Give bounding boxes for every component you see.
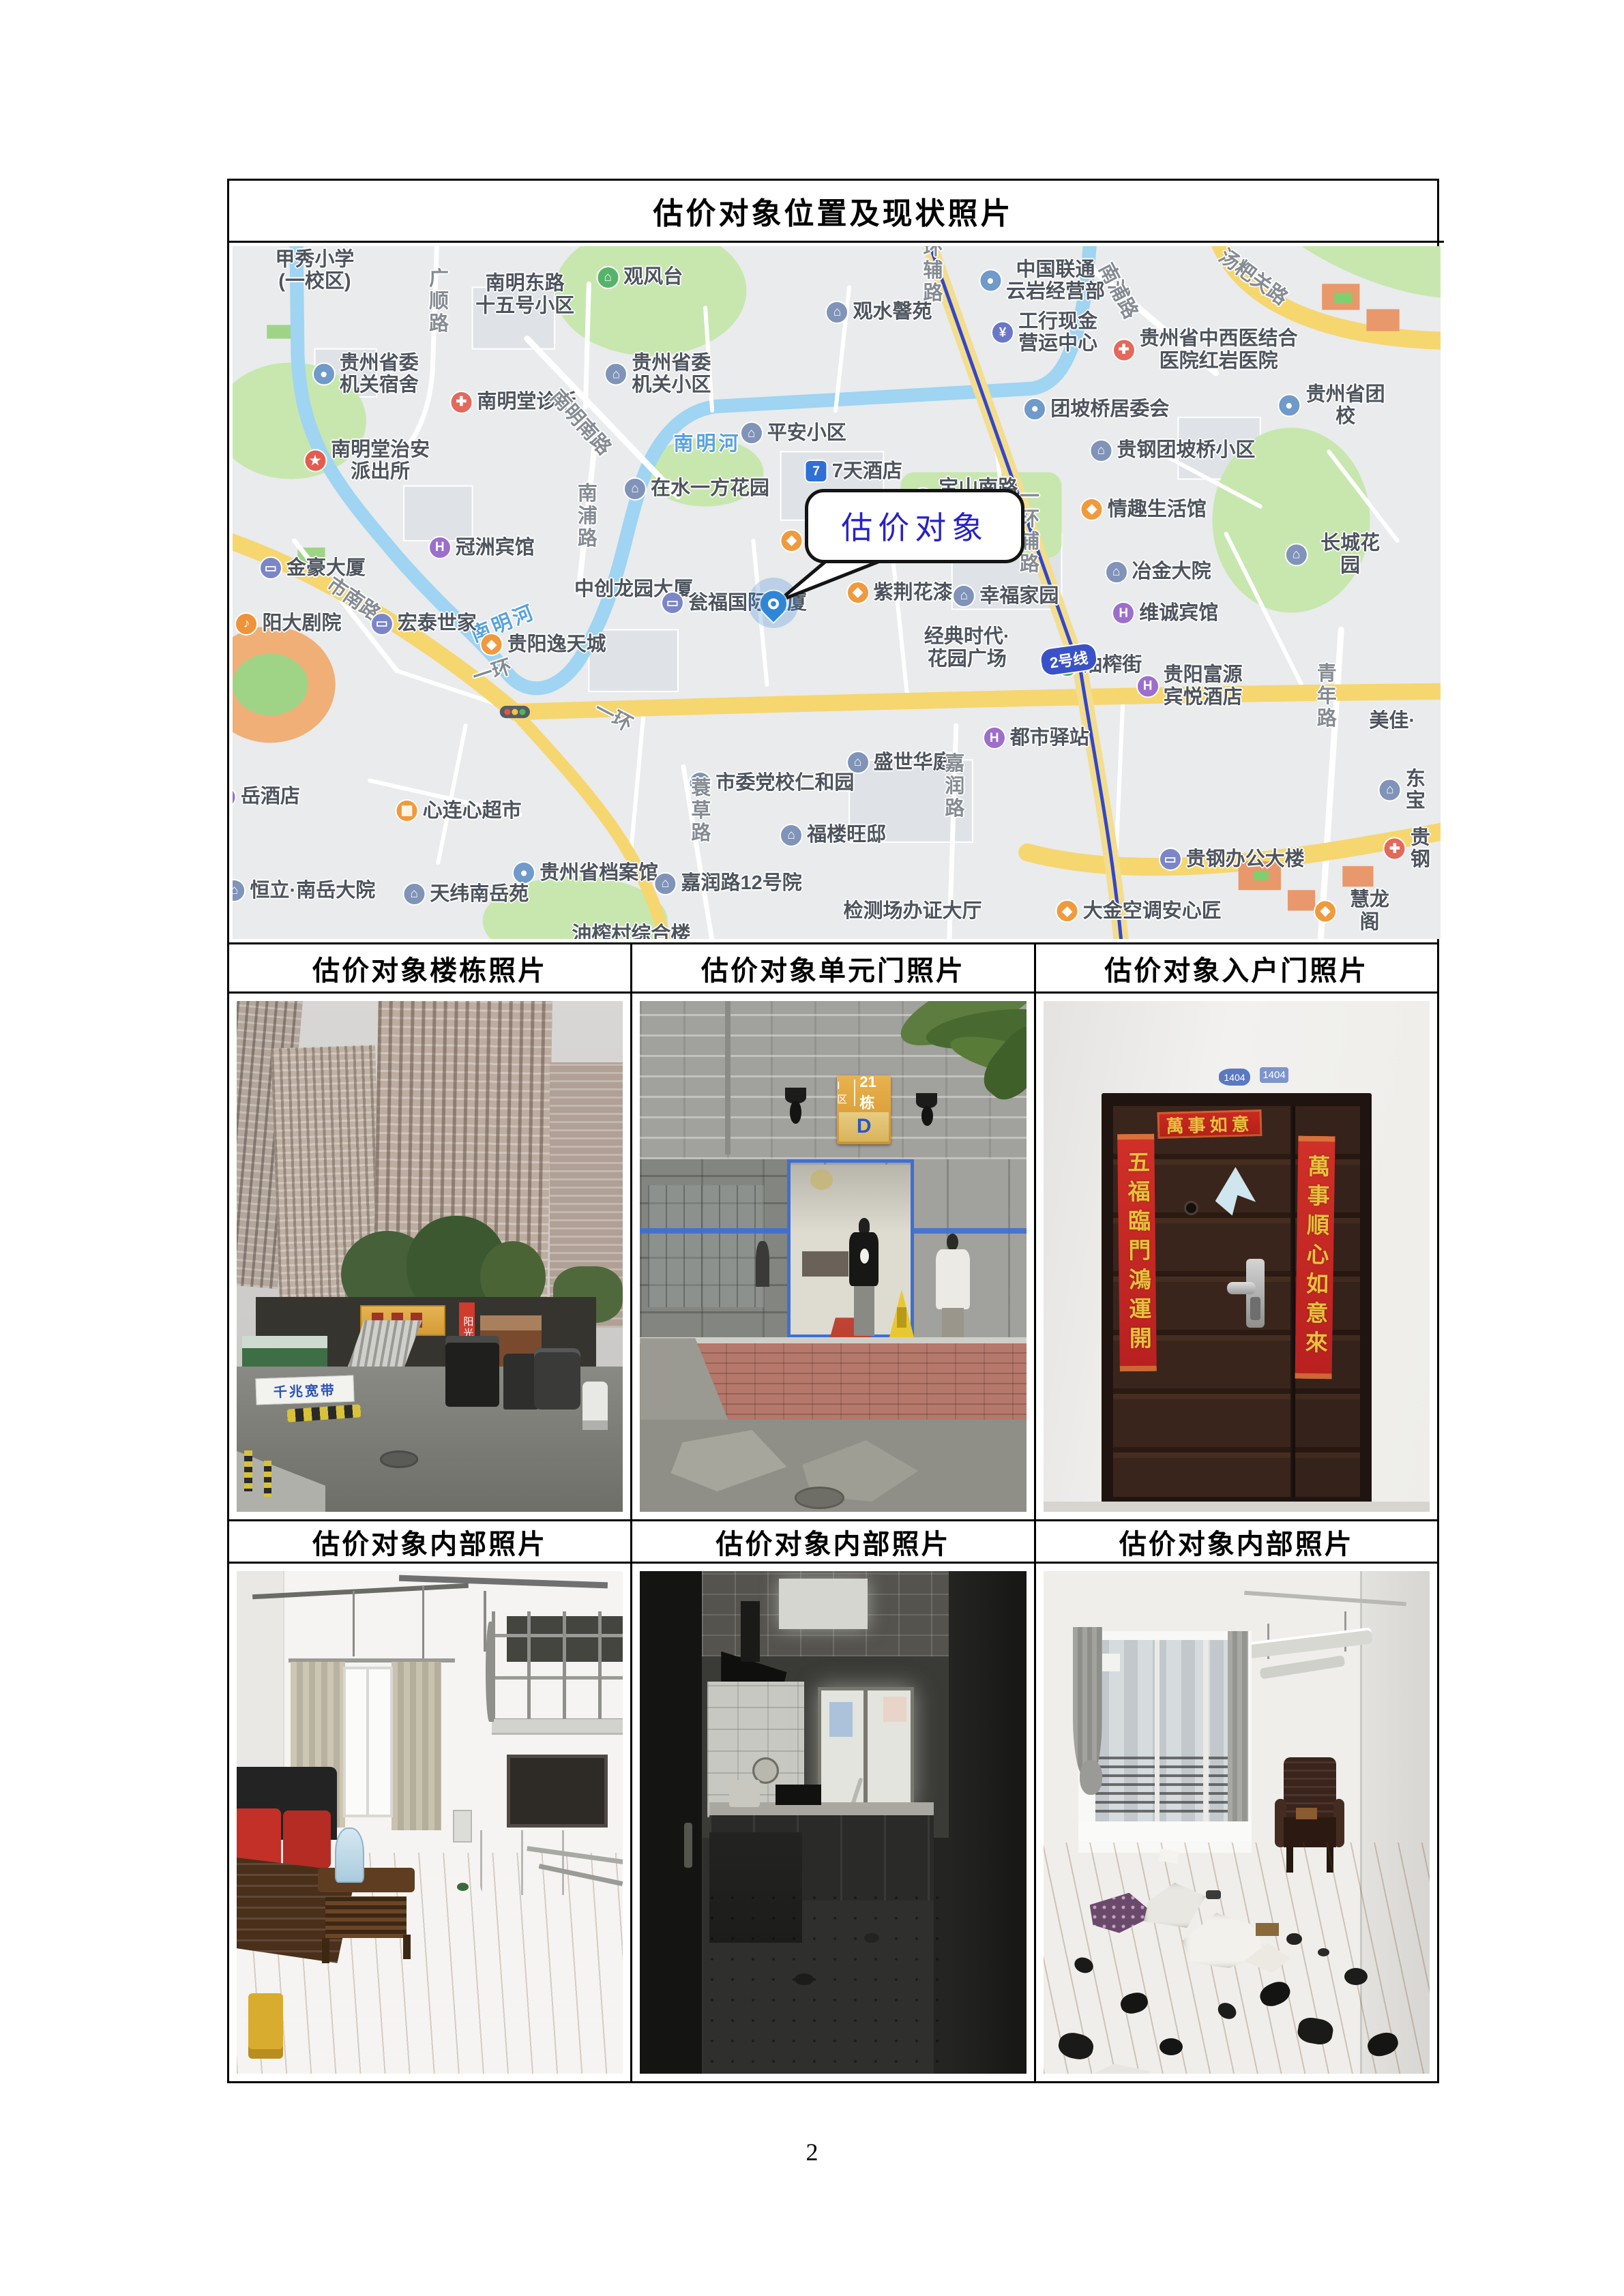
decor (1228, 1631, 1249, 1821)
decor (457, 1883, 469, 1891)
map-poi-label: ⌂天纬南岳苑 (402, 882, 529, 906)
decor (445, 1336, 499, 1407)
decor (582, 1382, 608, 1430)
map-label-text: 东宝 (1406, 768, 1426, 812)
interior-photo-kitchen (640, 1571, 1026, 2074)
community-icon: ⌂ (1285, 543, 1308, 566)
report-page: 估价对象位置及现状照片 (0, 0, 1624, 2296)
decor (486, 1622, 493, 1722)
map-river-label: 南明河 (673, 432, 741, 454)
unit-sign-number: 21栋 (859, 1073, 891, 1113)
decor (534, 1348, 580, 1410)
decor (829, 1702, 853, 1738)
map-label-text: 恒立·南岳大院 (250, 880, 376, 901)
shop-icon: ◆ (780, 529, 803, 552)
map-label-text: 中国联通 云岩经营部 (1006, 258, 1105, 303)
page-number: 2 (0, 2138, 1624, 2166)
poi-pin-icon: ● (312, 363, 336, 386)
map-poi-label: 77天酒店 (805, 460, 902, 483)
door-plate-left: 1404 (1219, 1069, 1250, 1086)
map-label-text: 冠洲宾馆 (456, 537, 535, 558)
map-poi-label: H都市驿站 (983, 726, 1089, 749)
map-road-label: 环辅路 (919, 246, 941, 304)
poi-pin-icon: ● (512, 861, 535, 884)
photo-header-row-2: 估价对象内部照片 估价对象内部照片 估价对象内部照片 (229, 1519, 1437, 1562)
map-label-text: 广顺路 (426, 268, 447, 336)
decor (863, 1687, 868, 1808)
decor (248, 1993, 283, 2059)
building-icon: ▭ (259, 556, 282, 580)
person-1 (846, 1218, 881, 1335)
decor (507, 1755, 607, 1828)
community-icon: ⌂ (1105, 561, 1128, 584)
hotel-7-icon: 7 (805, 460, 828, 483)
entry-door-photo-cell: 1404 1404 萬事如意 五福臨門鴻運開 萬事順心如意來 (1034, 994, 1437, 1519)
map-label-text: 南明河 (673, 432, 741, 454)
map-label-text: 贵阳富源 宾悦酒店 (1164, 664, 1243, 709)
hotel-icon: H (1112, 601, 1135, 625)
location-map[interactable]: 甲秀小学 (一校区)广顺路南明东路 十五号小区⌂观风台⌂观水韾苑●中国联通 云岩… (233, 246, 1441, 939)
hotel-icon: H (233, 786, 237, 809)
map-poi-label: ⌂东宝 (1378, 768, 1426, 812)
map-label-text: 慧龙阁 (1341, 889, 1398, 934)
decor (422, 1586, 424, 1662)
map-poi-label: ●贵州省团校 (1278, 383, 1386, 428)
decor (779, 1579, 868, 1629)
map-poi-label: ⌂贵州省委 机关小区 (604, 352, 711, 396)
map-label-text: 南明堂治安 派出所 (331, 438, 430, 483)
map-label-text: 大金空调安心匠 (1083, 900, 1222, 922)
community-icon: ⌂ (653, 872, 677, 895)
building-photo-cell: 阳光100 千兆宽带 (229, 994, 630, 1519)
hotel-icon: H (983, 726, 1006, 749)
entry-door-photo: 1404 1404 萬事如意 五福臨門鴻運開 萬事順心如意來 (1044, 1001, 1430, 1512)
decor (366, 1667, 370, 1817)
map-labels-layer: 甲秀小学 (一校区)广顺路南明东路 十五号小区⌂观风台⌂观水韾苑●中国联通 云岩… (233, 246, 1441, 939)
map-label-text: 盛世华庭 (874, 751, 953, 773)
map-label-text: 市委党校仁和园 (715, 772, 854, 794)
police-icon: ★ (304, 449, 327, 473)
map-label-text: 维诚宾馆 (1139, 602, 1218, 624)
map-poi-label: ⌂冶金大院 (1105, 561, 1211, 584)
shop-icon: ◆ (1056, 899, 1079, 923)
map-label-text: 检测场办证大厅 (844, 900, 982, 922)
decor (640, 1571, 703, 2074)
map-row: 甲秀小学 (一校区)广顺路南明东路 十五号小区⌂观风台⌂观水韾苑●中国联通 云岩… (229, 241, 1444, 942)
decor (503, 1354, 538, 1410)
map-poi-label: 南明东路 十五号小区 (475, 273, 574, 317)
photo-row-1: 阳光100 千兆宽带 (229, 992, 1437, 1519)
decor (1155, 1640, 1160, 1821)
bay-window (1078, 1631, 1252, 1852)
shop-icon: ◆ (1080, 498, 1104, 521)
map-poi-label: 油榨村综合楼 (572, 923, 690, 939)
table-title: 估价对象位置及现状照片 (229, 181, 1437, 241)
community-icon: ⌂ (952, 584, 975, 608)
decor (790, 1101, 801, 1124)
decor (776, 1785, 822, 1804)
header-interior-photo-3: 估价对象内部照片 (1034, 1521, 1437, 1562)
map-poi-label: ▭宏泰世家 (370, 612, 477, 636)
poi-pin-icon: ● (979, 269, 1002, 293)
shop-icon: ◆ (480, 633, 503, 656)
map-label-text: 长城花园 (1312, 533, 1389, 577)
map-label-text: 环辅路 (919, 246, 941, 304)
hospital-icon: ✚ (1112, 338, 1136, 361)
map-label-text: 7天酒店 (832, 460, 902, 482)
unit-number-sign: Ⅰ区 21栋 D (837, 1075, 891, 1144)
map-label-text: 冶金大院 (1132, 561, 1211, 582)
map-label-text: 工行现金 营运中心 (1018, 311, 1097, 355)
map-label-text: 南浦路 (574, 483, 596, 550)
community-icon: ⌂ (402, 882, 426, 906)
door-couplet-left: 五福臨門鴻運開 (1117, 1133, 1156, 1371)
map-label-text: 都市驿站 (1010, 727, 1089, 749)
map-poi-label: ⌂观水韾苑 (825, 301, 932, 324)
coffee-table (318, 1868, 415, 1963)
interior-photo-room (1044, 1571, 1430, 2074)
map-label-text: 南明南路 (546, 386, 615, 460)
map-road-label: 一环 (470, 655, 514, 689)
map-poi-label: ◆紫荆花漆 (846, 581, 953, 604)
shop-icon: ◆ (846, 581, 870, 604)
unit-door-photo: Ⅰ区 21栋 D (640, 1001, 1026, 1512)
header-unit-door-photo: 估价对象单元门照片 (630, 944, 1033, 992)
decor (756, 1241, 769, 1287)
map-label-text: 福楼旺邸 (807, 824, 886, 846)
decor (854, 1286, 875, 1335)
map-label-text: 贵州省中西医结合 医院红岩医院 (1140, 328, 1298, 372)
map-poi-label: 甲秀小学 (一校区) (275, 248, 354, 293)
decor (1256, 1923, 1279, 1936)
map-label-text: 阳大剧院 (262, 612, 341, 634)
hotel-icon: H (1136, 674, 1160, 698)
decor (702, 1888, 949, 2074)
community-icon: ⌂ (740, 421, 763, 445)
map-poi-label: 美佳· (1369, 710, 1415, 732)
map-road-label: 嘉润路 (941, 753, 963, 820)
decor (1160, 2038, 1183, 2055)
shop-icon: ◆ (1314, 899, 1337, 923)
decor (949, 1571, 1026, 2074)
building-icon: ▭ (1159, 848, 1182, 871)
unit-door-photo-cell: Ⅰ区 21栋 D (630, 994, 1033, 1519)
map-label-text: 贵钢团坡桥小区 (1117, 439, 1255, 461)
decor (453, 1810, 472, 1843)
map-poi-label: ◆情趣生活馆 (1080, 498, 1207, 521)
map-poi-label: ▭贵钢办公大楼 (1159, 848, 1305, 871)
map-label-text: 甲秀小学 (一校区) (275, 248, 354, 293)
photo-row-2 (229, 1562, 1437, 2081)
community-icon: ⌂ (846, 751, 870, 774)
map-label-text: 一环 (470, 655, 514, 689)
map-label-text: 嘉润路 (941, 753, 963, 820)
decor (1250, 1297, 1261, 1320)
map-poi-label: H冠洲宾馆 (428, 536, 535, 559)
decor (1044, 1502, 1430, 1512)
map-poi-label: ⌂嘉润路12号院 (653, 872, 801, 895)
decor (264, 1461, 271, 1496)
map-road-label: 一环 (591, 698, 636, 736)
decor (244, 1450, 252, 1491)
community-icon: ⌂ (1378, 779, 1402, 802)
map-poi-label: H维诚宾馆 (1112, 601, 1218, 625)
header-interior-photo-2: 估价对象内部照片 (630, 1521, 1033, 1562)
decor (380, 1450, 419, 1467)
decor (648, 1185, 764, 1308)
decor (684, 1823, 692, 1868)
decor (1203, 1640, 1209, 1821)
decor (1073, 1627, 1102, 1778)
map-poi-label: ★南明堂治安 派出所 (304, 438, 430, 483)
map-road-label: 青年路 (1314, 663, 1335, 730)
map-poi-label: ◆大金空调安心匠 (1056, 899, 1222, 923)
decor (1186, 1203, 1196, 1213)
map-label-text: 贵阳逸天城 (507, 633, 606, 655)
map-label-text: 贵州省委 机关小区 (632, 352, 711, 396)
map-poi-label: ⌂市委党校仁和园 (688, 771, 854, 794)
map-poi-label: H贵阳富源 宾悦酒店 (1136, 664, 1243, 709)
map-label-text: 青年路 (1314, 663, 1335, 730)
map-label-text: 贵州省委 机关宿舍 (340, 352, 419, 396)
header-interior-photo-1: 估价对象内部照片 (229, 1521, 630, 1562)
subject-callout: 估价对象 (805, 489, 1024, 564)
map-label-text: 岳酒店 (241, 786, 300, 807)
map-label-text: 贵钢 (1411, 826, 1430, 871)
header-building-photo: 估价对象楼栋照片 (229, 944, 630, 992)
map-label-text: 观风台 (623, 266, 683, 288)
decor (1259, 1655, 1345, 1679)
map-label-text: 金豪大厦 (286, 557, 366, 579)
map-label-text: 经典时代· 花园广场 (924, 626, 1010, 670)
building-icon: ▭ (370, 612, 394, 636)
map-poi-label: ●贵州省档案馆 (512, 861, 658, 884)
interior-photo-loft (237, 1571, 623, 2074)
door-plate-right: 1404 (1260, 1067, 1288, 1082)
decor (883, 1697, 906, 1722)
map-road-label: 南浦路 (574, 483, 596, 550)
interior-photo-2-cell (630, 1564, 1033, 2081)
map-poi-label: 检测场办证大厅 (844, 900, 982, 922)
decor (947, 1234, 958, 1251)
community-icon: ⌂ (1089, 439, 1112, 462)
building-icon: ▭ (661, 591, 684, 614)
map-road-label: 广顺路 (426, 268, 447, 336)
map-poi-label: H岳酒店 (233, 786, 300, 809)
header-entry-door-photo: 估价对象入户门照片 (1034, 944, 1437, 992)
map-poi-label: ⌂长城花园 (1285, 533, 1389, 577)
map-label-text: 宏泰世家 (398, 612, 477, 634)
community-icon: ⌂ (604, 363, 628, 386)
decor (921, 1106, 933, 1127)
interior-photo-1-cell (229, 1564, 630, 2081)
map-label-text: 贵州省档案馆 (540, 862, 658, 884)
door-couplet-right: 萬事順心如意來 (1295, 1136, 1335, 1379)
map-poi-label: ⌂平安小区 (740, 421, 846, 445)
map-poi-label: ▭金豪大厦 (259, 556, 366, 580)
decor (1080, 1760, 1102, 1795)
map-poi-label: ⌂幸福家园 (952, 584, 1059, 608)
map-poi-label: ♪阳大剧院 (235, 612, 341, 636)
map-label-text: 蓑草路 (688, 777, 709, 845)
map-poi-label: ⌂观风台 (596, 266, 683, 289)
unit-sign-zone: Ⅰ区 (837, 1079, 855, 1106)
decor (252, 1583, 469, 1599)
decor (1078, 1821, 1252, 1841)
map-poi-label: ⌂福楼旺邸 (780, 824, 886, 847)
hospital-icon: ✚ (449, 391, 473, 414)
map-poi-label: ◆慧龙阁 (1314, 889, 1398, 934)
map-label-text: 团坡桥居委会 (1050, 398, 1169, 420)
hospital-icon: ✚ (1383, 837, 1406, 861)
decor (480, 1830, 600, 1896)
map-label-text: 贵钢办公大楼 (1186, 848, 1305, 870)
theater-icon: ♪ (235, 612, 258, 636)
decor (325, 1896, 407, 1939)
photo-header-row-1: 估价对象楼栋照片 估价对象单元门照片 估价对象入户门照片 (229, 942, 1437, 992)
map-label-text: 天纬南岳苑 (430, 883, 529, 905)
decor (492, 1719, 623, 1734)
decor (1206, 1890, 1222, 1899)
decor (1318, 1948, 1329, 1956)
map-label-text: 嘉润路12号院 (681, 872, 801, 894)
decor (392, 1662, 442, 1830)
map-label-text: 观水韾苑 (853, 301, 932, 323)
map-poi-label: ¥工行现金 营运中心 (991, 311, 1097, 355)
community-icon: ⌂ (233, 879, 246, 902)
bank-icon: ¥ (991, 321, 1014, 344)
map-road-label: 南明南路 (546, 386, 615, 460)
map-poi-label: ⌂在水一方花园 (623, 477, 769, 501)
map-poi-label: ●中国联通 云岩经营部 (979, 258, 1105, 303)
map-label-text: 在水一方花园 (651, 477, 769, 499)
decor (353, 1591, 355, 1656)
decor (318, 1868, 415, 1892)
door-banner: 萬事如意 (1157, 1109, 1262, 1139)
map-poi-label: ✚贵钢 (1383, 826, 1430, 871)
decor (492, 1611, 623, 1722)
decor (897, 1307, 906, 1328)
map-label-text: 汤粑关路 (1215, 246, 1292, 310)
community-icon: ⌂ (780, 824, 803, 847)
unit-sign-elevator: D (857, 1115, 872, 1138)
decor (1227, 1282, 1256, 1294)
water-jug (335, 1828, 364, 1883)
decor (1102, 1654, 1119, 1671)
decor (322, 1938, 329, 1963)
decor (936, 1249, 970, 1309)
map-poi-label: ⌂盛世华庭 (846, 751, 953, 774)
map-label-text: 南明东路 十五号小区 (475, 273, 574, 317)
decor (1296, 1808, 1317, 1819)
map-poi-label: ⌂恒立·南岳大院 (233, 879, 375, 902)
decor (741, 1601, 760, 1661)
supermarket-icon: ▦ (396, 799, 419, 822)
poi-pin-icon: ● (1278, 394, 1301, 417)
decor: Ⅰ区 21栋 (837, 1075, 891, 1112)
decor (725, 1001, 730, 1154)
hotel-icon: H (428, 536, 452, 559)
map-road-label: 汤粑关路 (1215, 246, 1292, 310)
decor (729, 1780, 760, 1808)
map-label-text: 平安小区 (767, 422, 846, 444)
park-icon: ⌂ (596, 266, 619, 289)
map-poi-label: ✚贵州省中西医结合 医院红岩医院 (1112, 328, 1298, 372)
decor: D (839, 1112, 889, 1141)
decor (859, 1218, 870, 1233)
map-label-text: 心连心超市 (423, 800, 522, 822)
building-photo: 阳光100 千兆宽带 (237, 1001, 623, 1512)
community-icon: ⌂ (623, 477, 647, 501)
interior-photo-3-cell (1034, 1564, 1437, 2081)
map-label-text: 幸福家园 (979, 585, 1059, 607)
map-poi-label: 经典时代· 花园广场 (924, 626, 1010, 670)
map-poi-label: ⌂贵钢团坡桥小区 (1089, 439, 1255, 462)
community-icon: ⌂ (825, 301, 848, 324)
map-poi-label: ●团坡桥居委会 (1023, 398, 1169, 421)
poi-pin-icon: ● (1023, 398, 1046, 421)
map-road-label: 蓑草路 (688, 777, 709, 845)
map-label-text: 一环 (591, 698, 636, 736)
map-label-text: 紫荆花漆 (874, 582, 953, 603)
map-poi-label: ◆贵阳逸天城 (480, 633, 606, 656)
map-poi-label: ●贵州省委 机关宿舍 (312, 352, 419, 396)
map-label-text: 贵州省团校 (1305, 383, 1386, 428)
map-poi-label: ▦心连心超市 (396, 799, 522, 822)
map-label-text: 情趣生活馆 (1108, 498, 1207, 520)
building-banner: 千兆宽带 (256, 1375, 355, 1405)
decor (403, 1935, 411, 1959)
photo-table: 估价对象位置及现状照片 (227, 179, 1439, 2083)
map-label-text: 美佳· (1369, 710, 1415, 732)
map-label-text: 油榨村综合楼 (572, 923, 690, 939)
decor (283, 1810, 331, 1868)
